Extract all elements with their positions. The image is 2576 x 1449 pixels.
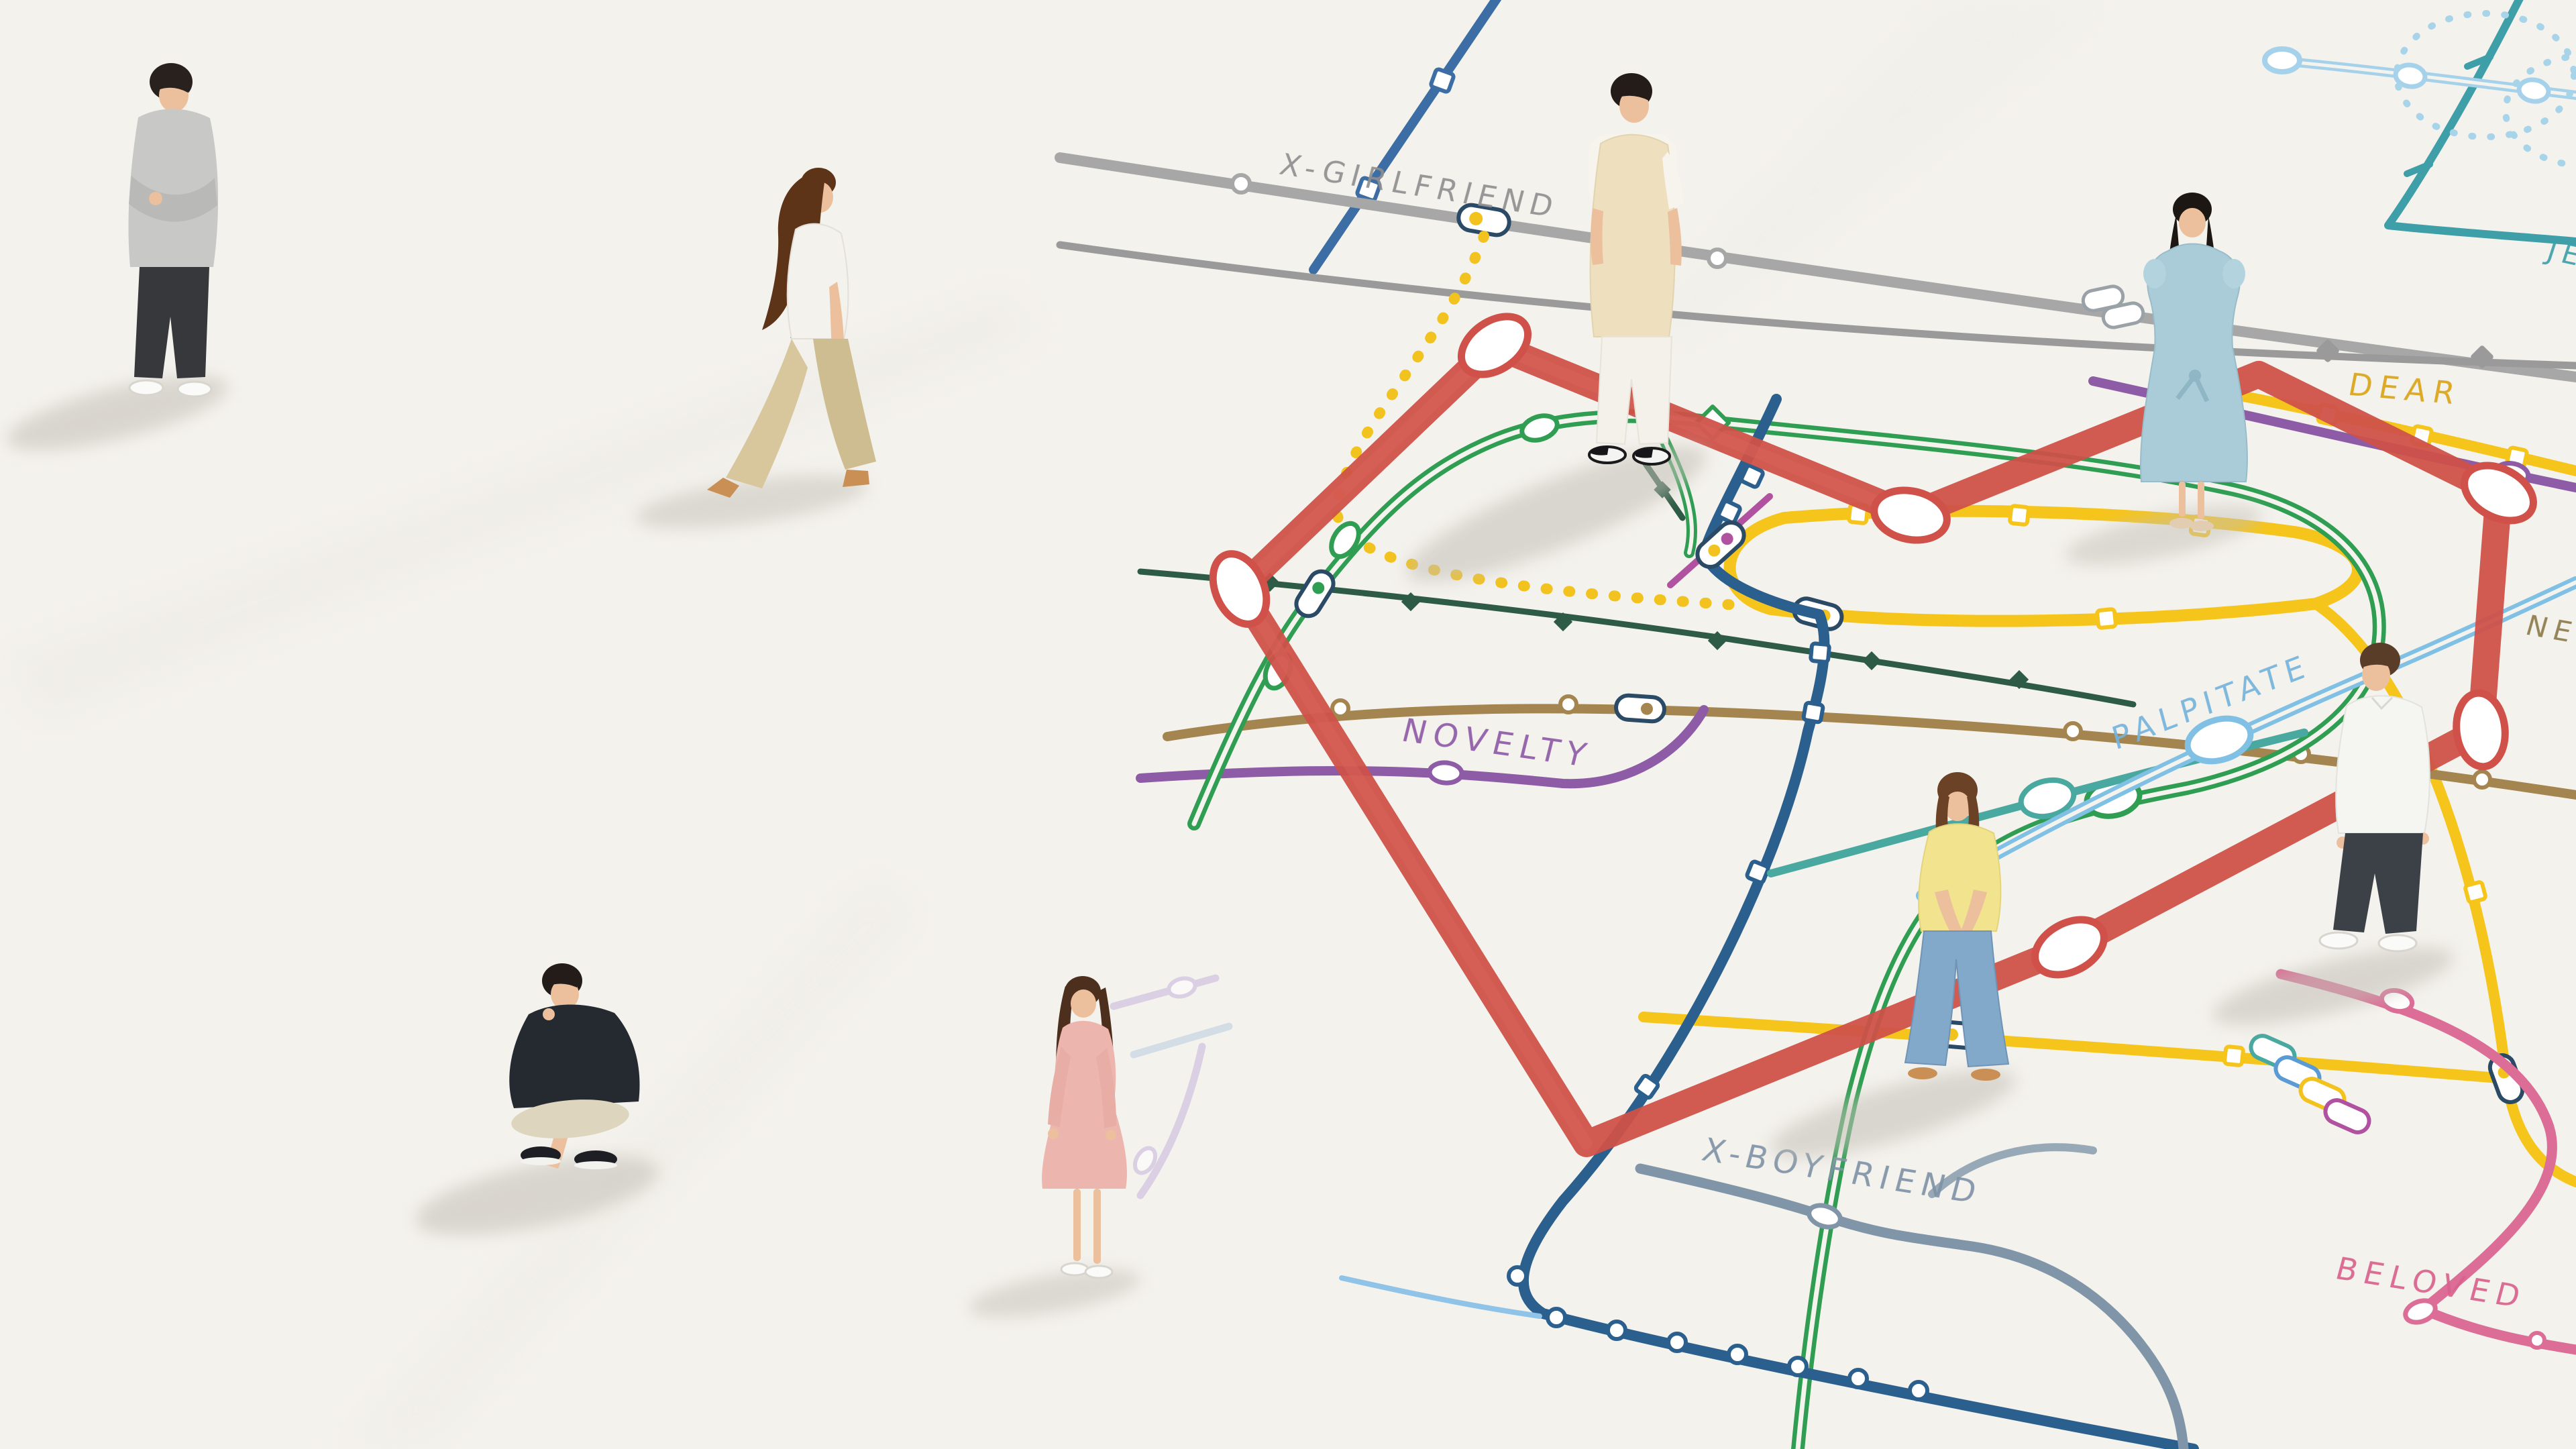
poster-canvas: X-GIRLFRIEND DEAR JE NE NOVELTY PALPITAT… xyxy=(0,0,2576,1449)
shirt xyxy=(2336,696,2430,833)
knit-vest xyxy=(1591,135,1675,337)
poster: X-GIRLFRIEND DEAR JE NE NOVELTY PALPITAT… xyxy=(0,0,2576,1449)
top xyxy=(1919,824,2000,931)
sweater xyxy=(509,1004,639,1108)
